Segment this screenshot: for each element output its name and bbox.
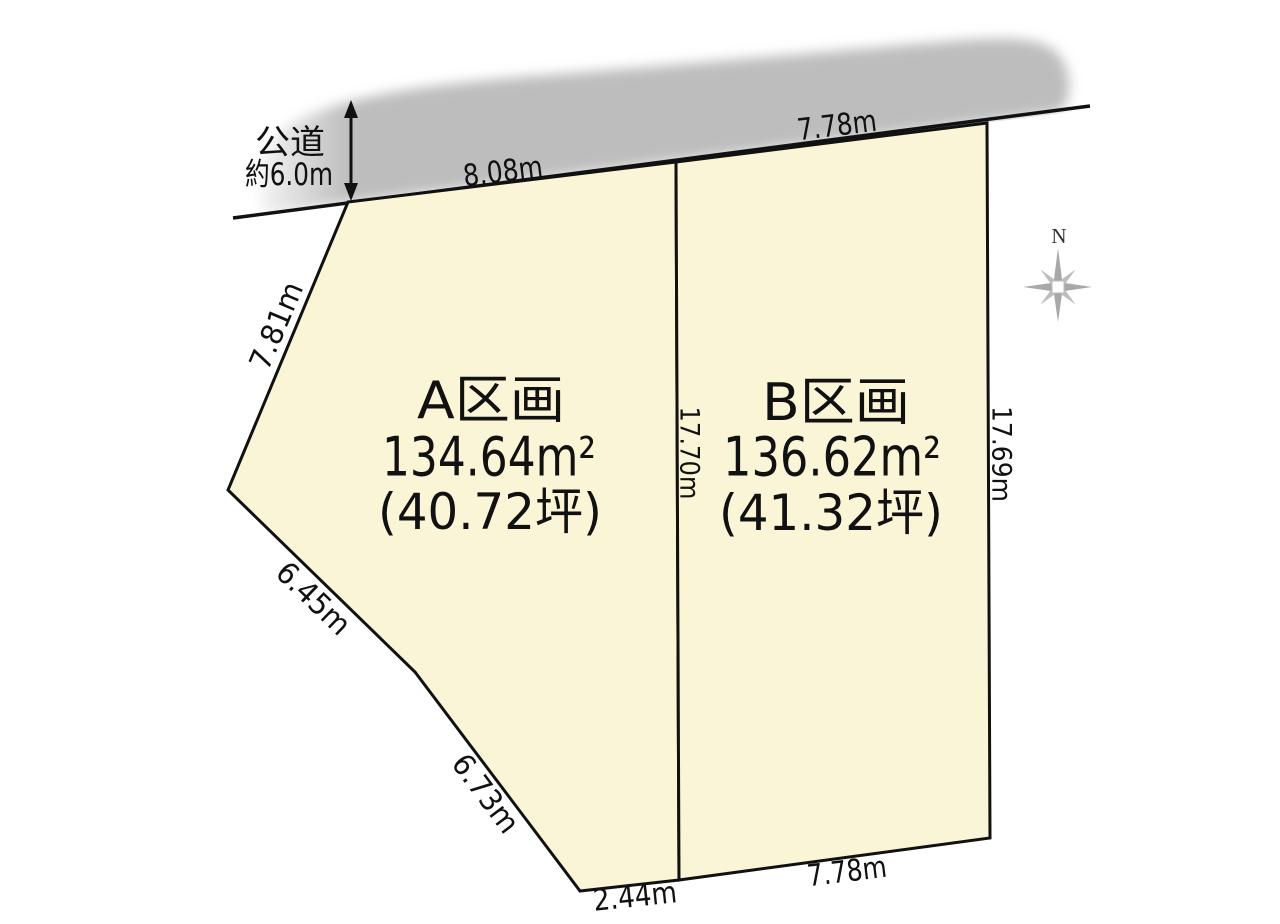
parcel-b-area: 136.62m² [723, 426, 941, 489]
dim-center-divider: 17.70m [674, 407, 705, 500]
compass-rose: N [1023, 224, 1092, 322]
dim-b-right: 17.69m [986, 406, 1017, 502]
parcel-a-area: 134.64m² [382, 426, 596, 489]
compass-center [1052, 281, 1064, 293]
road-label-line2: 約6.0m [245, 157, 333, 193]
dim-a-bottom: 2.44m [591, 875, 678, 919]
land-plot-diagram: 公道 約6.0m 8.08m 7.78m 7.81m 6.45m 6.73m 2… [0, 0, 1280, 924]
parcel-a-name: A区画 [417, 371, 565, 431]
land-plot-diagram-page: 公道 約6.0m 8.08m 7.78m 7.81m 6.45m 6.73m 2… [0, 0, 1280, 924]
parcel-b-tsubo: (41.32坪) [719, 484, 943, 542]
parcel-b-name: B区画 [762, 373, 910, 433]
parcel-a-tsubo: (40.72坪) [378, 483, 602, 541]
compass-north-label: N [1051, 224, 1066, 248]
